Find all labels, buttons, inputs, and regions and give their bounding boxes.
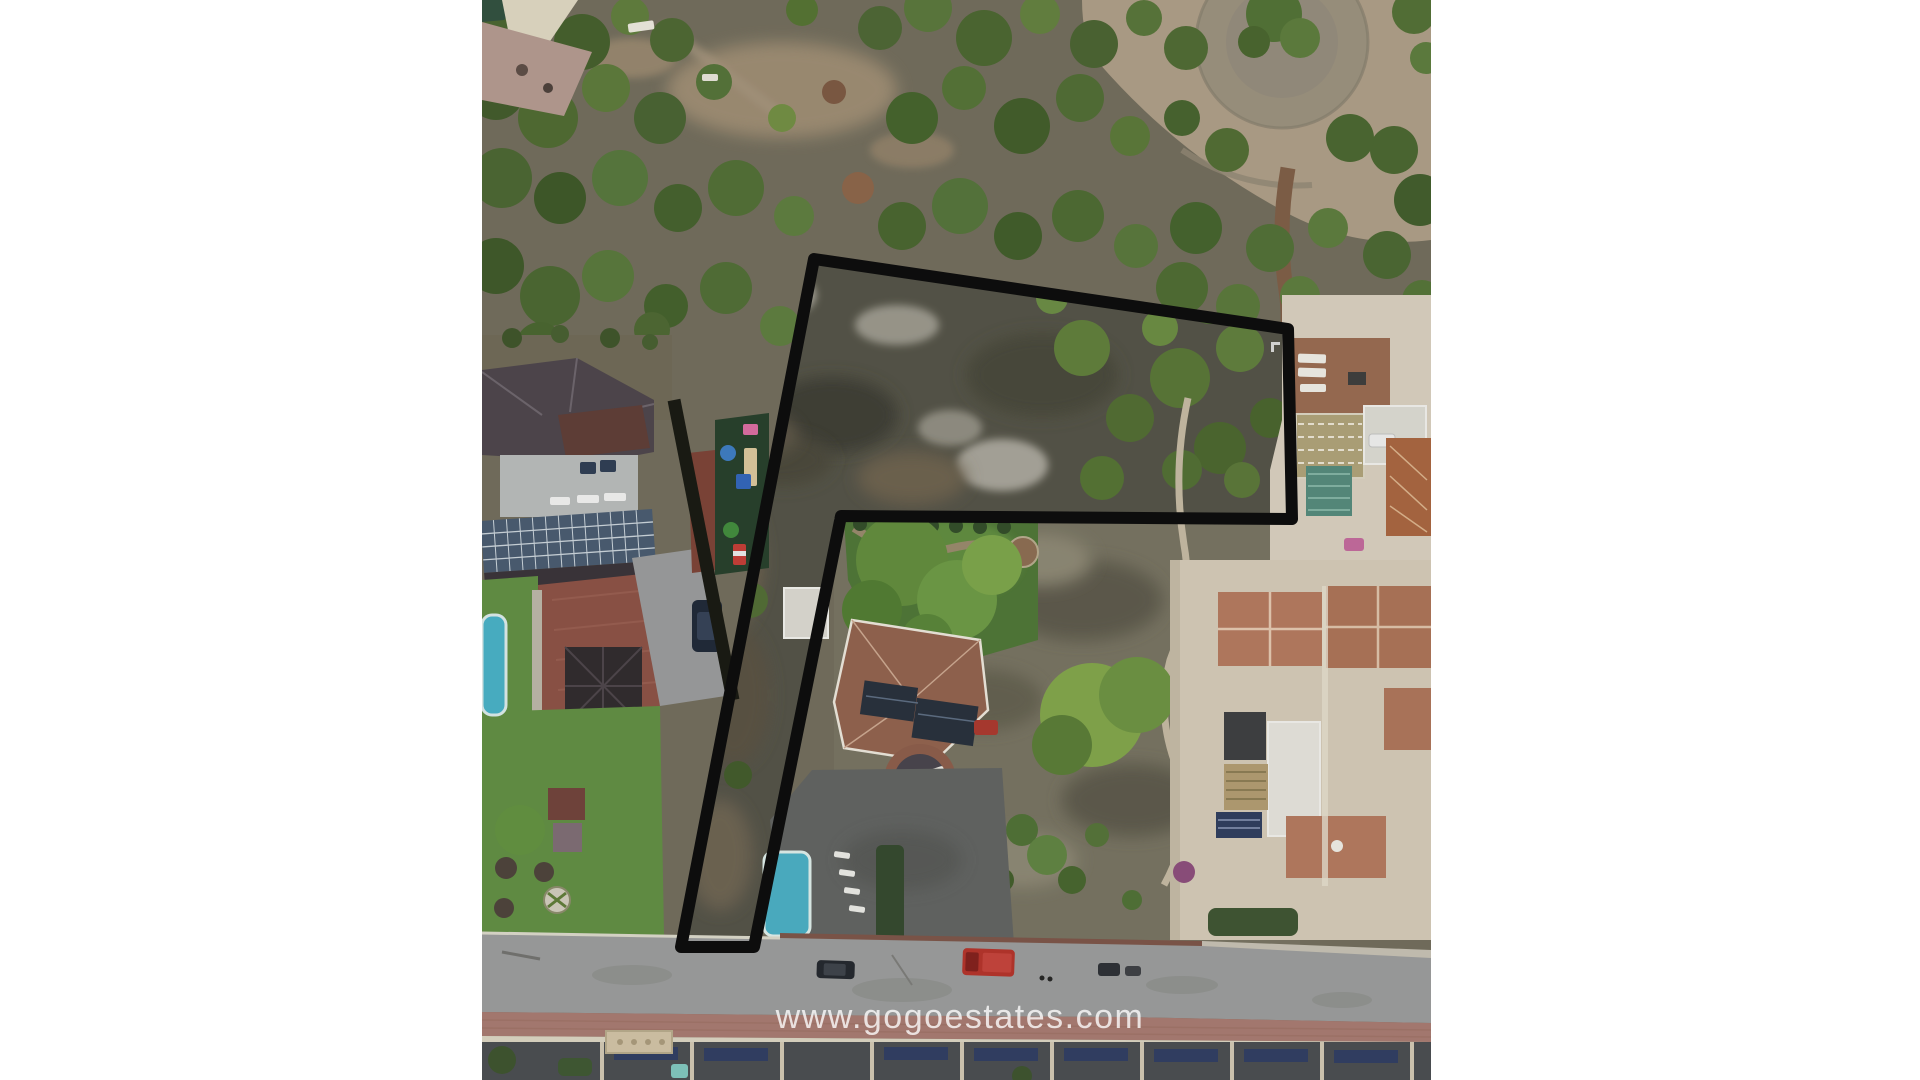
haze-overlay [482, 0, 1431, 1080]
aerial-photo: www.gogoestates.com [482, 0, 1431, 1080]
aerial-scene: www.gogoestates.com [482, 0, 1431, 1080]
white-margin-right [1431, 0, 1920, 1080]
page: www.gogoestates.com [0, 0, 1920, 1080]
watermark: www.gogoestates.com [775, 998, 1145, 1036]
white-margin-left [0, 0, 482, 1080]
